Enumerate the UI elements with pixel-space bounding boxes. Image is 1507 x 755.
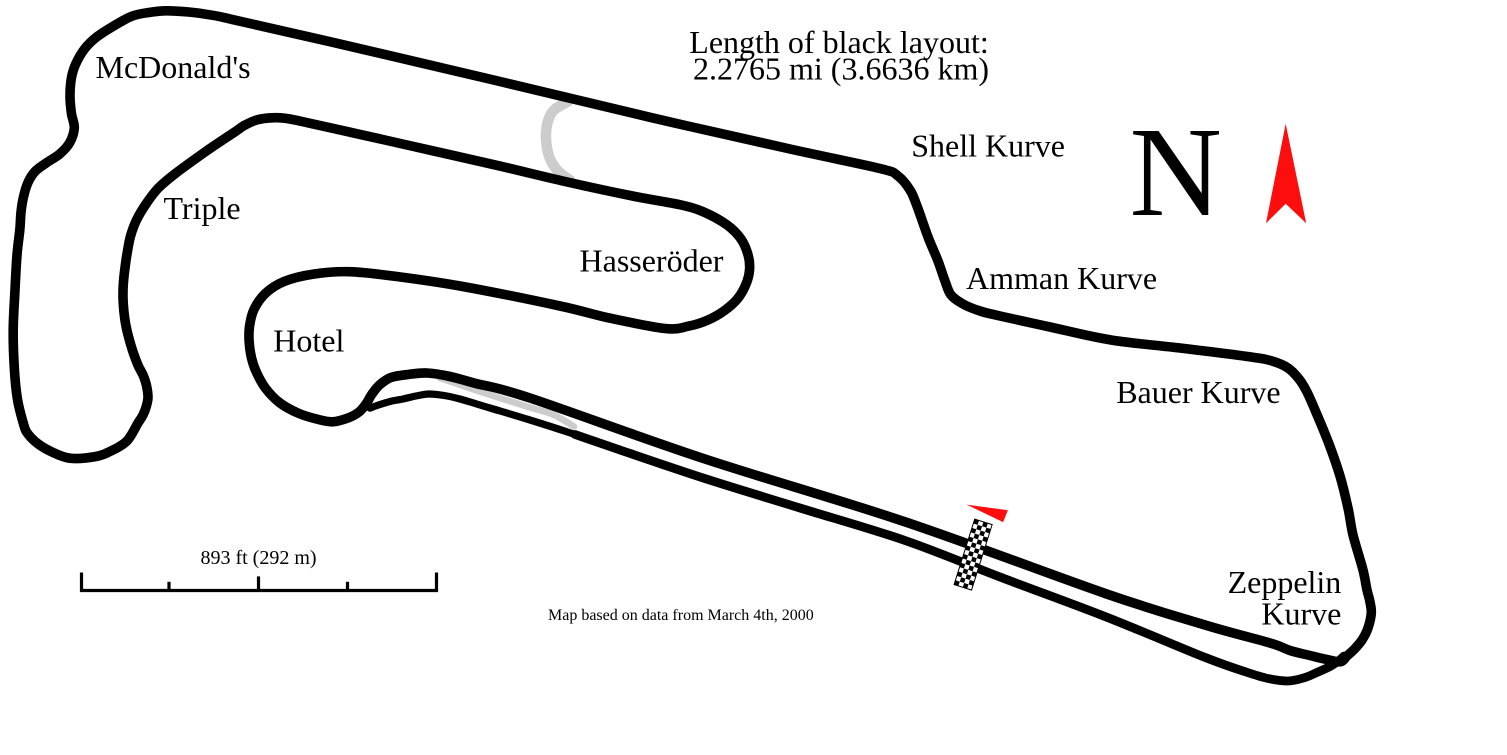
svg-text:Map based on data from March 4: Map based on data from March 4th, 2000	[548, 607, 814, 624]
svg-text:McDonald's: McDonald's	[96, 49, 251, 85]
svg-text:Hasseröder: Hasseröder	[580, 242, 724, 278]
svg-text:Hotel: Hotel	[273, 323, 344, 359]
svg-text:2.2765 mi (3.6636 km): 2.2765 mi (3.6636 km)	[693, 50, 989, 86]
svg-text:N: N	[1130, 101, 1222, 243]
svg-text:Amman Kurve: Amman Kurve	[966, 260, 1157, 296]
svg-text:Kurve: Kurve	[1261, 595, 1341, 631]
svg-text:893 ft (292 m): 893 ft (292 m)	[200, 547, 316, 569]
svg-text:Shell Kurve: Shell Kurve	[911, 128, 1065, 164]
svg-text:Bauer Kurve: Bauer Kurve	[1116, 374, 1280, 410]
svg-text:Triple: Triple	[164, 190, 241, 226]
